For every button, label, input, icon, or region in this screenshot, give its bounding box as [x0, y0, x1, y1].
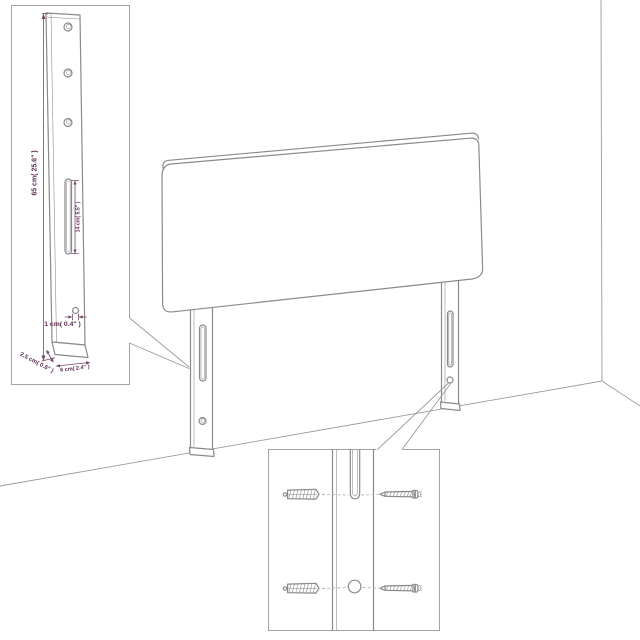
- panel-face: [162, 138, 483, 312]
- wall-corner-line: [601, 0, 602, 381]
- right-leg-body: [442, 276, 459, 405]
- mounting-detail-inset: [269, 450, 440, 631]
- diagram-svg: 65 cm( 25.6" ) 14 cm( 5.5" ) 1 cm( 0.4" …: [0, 0, 640, 640]
- leg-detail-inset: 65 cm( 25.6" ) 14 cm( 5.5" ) 1 cm( 0.4" …: [12, 6, 130, 385]
- headboard-panel: [162, 133, 483, 312]
- dimension-hole-label: 1 cm( 0.4" ): [44, 321, 80, 328]
- callout-line-lower: [130, 343, 190, 369]
- dimension-height-label: 65 cm( 25.6" ): [32, 150, 39, 195]
- mounting-detail-callout: [377, 383, 451, 450]
- floor-line-right: [602, 381, 640, 406]
- callout-line-upper: [130, 318, 190, 367]
- left-leg: [190, 296, 215, 457]
- callout-line-left: [377, 383, 449, 450]
- mounting-inset-background: [269, 450, 440, 631]
- left-leg-foot: [190, 448, 215, 457]
- headboard-assembly-diagram: 65 cm( 25.6" ) 14 cm( 5.5" ) 1 cm( 0.4" …: [0, 0, 640, 640]
- dimension-slot-label: 14 cm( 5.5" ): [76, 201, 82, 232]
- leg-detail-callout: [130, 318, 190, 369]
- detail-leg-foot: [52, 342, 88, 358]
- right-leg: [441, 276, 461, 411]
- callout-line-right: [402, 383, 451, 450]
- right-leg-foot: [441, 402, 461, 411]
